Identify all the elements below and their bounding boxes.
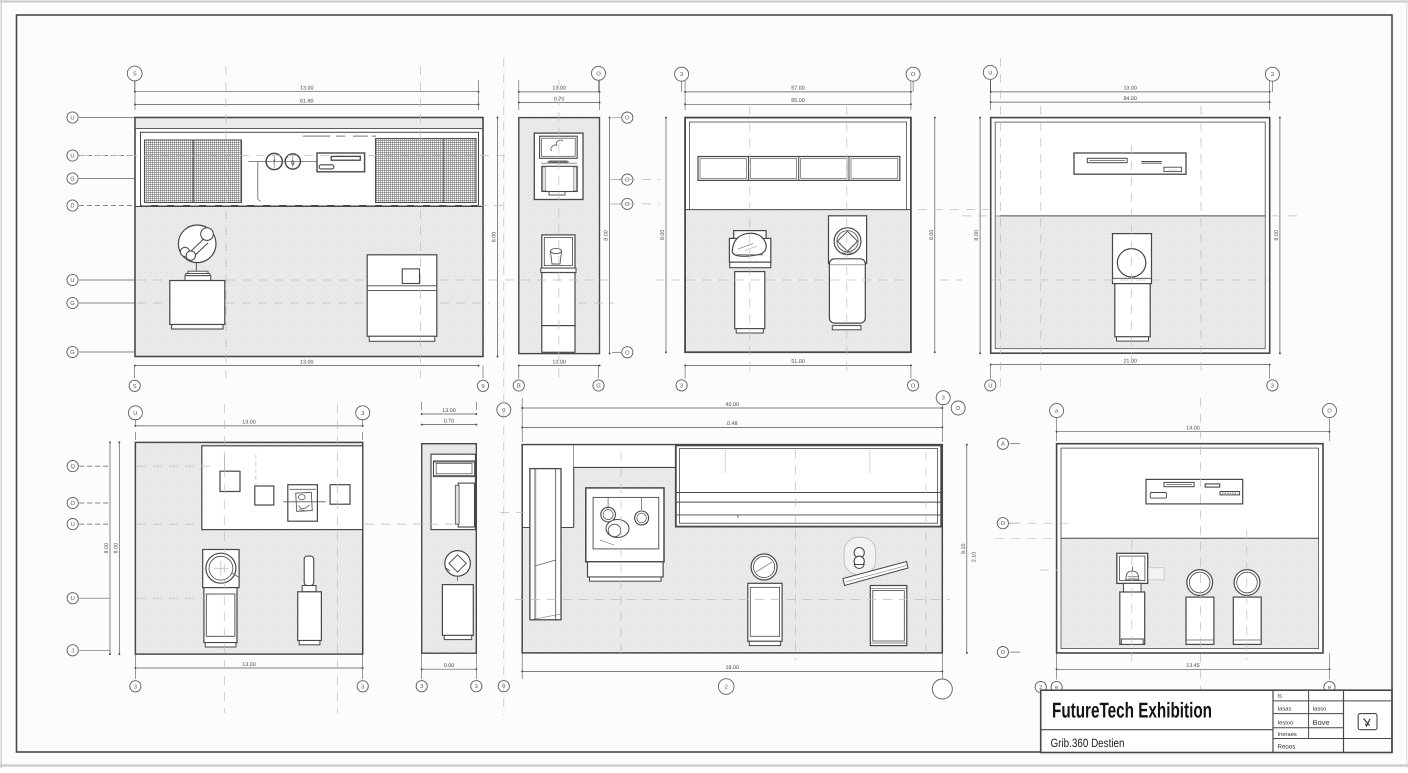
svg-text:f: f (273, 158, 275, 166)
svg-text:G: G (70, 176, 75, 183)
svg-text:13.00: 13.00 (242, 662, 256, 668)
svg-text:U: U (988, 383, 992, 389)
svg-text:ts: ts (1278, 694, 1283, 700)
svg-text:85.00: 85.00 (791, 98, 805, 104)
svg-text:Grib.360 Destien: Grib.360 Destien (1051, 736, 1125, 750)
svg-text:Iestoo: Iestoo (1278, 720, 1294, 726)
svg-text:O: O (911, 71, 916, 78)
svg-text:U: U (71, 522, 75, 528)
svg-text:13.00: 13.00 (300, 86, 314, 92)
svg-text:57.00: 57.00 (791, 86, 805, 92)
svg-text:18.00: 18.00 (726, 665, 740, 671)
svg-text:G: G (596, 383, 601, 390)
svg-text:S: S (133, 383, 137, 390)
svg-text:U: U (71, 596, 75, 602)
svg-text:O: O (1327, 408, 1332, 415)
svg-text:O: O (625, 177, 630, 184)
svg-text:3: 3 (680, 71, 683, 78)
svg-text:O: O (625, 115, 630, 122)
svg-text:3: 3 (1271, 71, 1274, 78)
svg-text:3: 3 (1271, 382, 1274, 389)
svg-text:8.00: 8.00 (929, 230, 935, 241)
svg-text:14.00: 14.00 (1186, 426, 1200, 432)
svg-text:8.00: 8.00 (113, 543, 119, 554)
svg-text:3: 3 (361, 410, 364, 417)
svg-text:84.00: 84.00 (1123, 96, 1137, 102)
svg-text:O: O (625, 349, 630, 356)
svg-text:D: D (70, 204, 74, 210)
svg-text:U: U (133, 411, 137, 417)
svg-text:Reoos: Reoos (1278, 744, 1296, 751)
svg-text:G: G (70, 300, 75, 307)
svg-text:13.45: 13.45 (1186, 663, 1200, 669)
svg-text:9: 9 (481, 383, 484, 390)
svg-text:B: B (517, 384, 521, 390)
svg-text:O: O (911, 382, 916, 389)
svg-text:3: 3 (680, 382, 683, 389)
svg-text:O: O (1001, 520, 1006, 527)
svg-text:Bove: Bove (1313, 718, 1330, 727)
svg-text:21.00: 21.00 (1123, 358, 1137, 364)
svg-text:O: O (70, 500, 75, 507)
svg-text:U: U (70, 154, 74, 160)
svg-text:8.10: 8.10 (961, 544, 967, 555)
svg-text:2.10: 2.10 (972, 552, 978, 563)
svg-text:13.00: 13.00 (1123, 86, 1137, 92)
svg-text:U: U (70, 278, 74, 284)
svg-text:g: g (291, 159, 295, 166)
svg-text:3: 3 (420, 683, 423, 690)
svg-text:40.00: 40.00 (726, 402, 740, 408)
svg-text:Iasso: Iasso (1313, 707, 1327, 713)
svg-text:G: G (70, 349, 75, 356)
svg-text:0.00: 0.00 (444, 663, 455, 669)
svg-text:13.00: 13.00 (242, 420, 256, 426)
svg-text:2: 2 (725, 684, 728, 691)
svg-text:J: J (71, 648, 74, 654)
svg-text:8.00: 8.00 (104, 543, 110, 554)
svg-text:U: U (988, 70, 992, 76)
svg-text:Iasas: Iasas (1278, 707, 1292, 713)
svg-text:13.00: 13.00 (442, 408, 456, 414)
svg-text:0.48: 0.48 (727, 421, 738, 427)
svg-text:D: D (956, 406, 960, 412)
svg-text:8.00: 8.00 (974, 230, 980, 241)
svg-text:51.00: 51.00 (791, 359, 805, 365)
svg-text:S: S (133, 71, 137, 78)
svg-text:FutureTech Exhibition: FutureTech Exhibition (1052, 699, 1212, 723)
svg-text:3: 3 (361, 683, 364, 690)
svg-text:13.00: 13.00 (300, 359, 314, 365)
svg-text:8.00: 8.00 (1274, 230, 1280, 241)
svg-text:O: O (596, 70, 601, 77)
svg-text:O: O (625, 201, 630, 208)
svg-text:3: 3 (942, 395, 945, 402)
svg-text:8.00: 8.00 (492, 232, 498, 243)
svg-text:——: —— (1169, 167, 1177, 172)
svg-text:0.70: 0.70 (444, 418, 455, 424)
svg-text:U: U (70, 116, 74, 122)
svg-text:3: 3 (134, 683, 137, 690)
svg-text:8.00: 8.00 (660, 230, 666, 241)
svg-text:Ineraes: Ineraes (1278, 732, 1297, 738)
svg-text:Q: Q (70, 463, 75, 470)
svg-text:8.00: 8.00 (604, 230, 610, 241)
svg-text:3: 3 (475, 683, 478, 690)
svg-text:O: O (1001, 649, 1006, 656)
svg-text:A: A (1001, 442, 1005, 448)
svg-text:61.80: 61.80 (300, 98, 314, 104)
